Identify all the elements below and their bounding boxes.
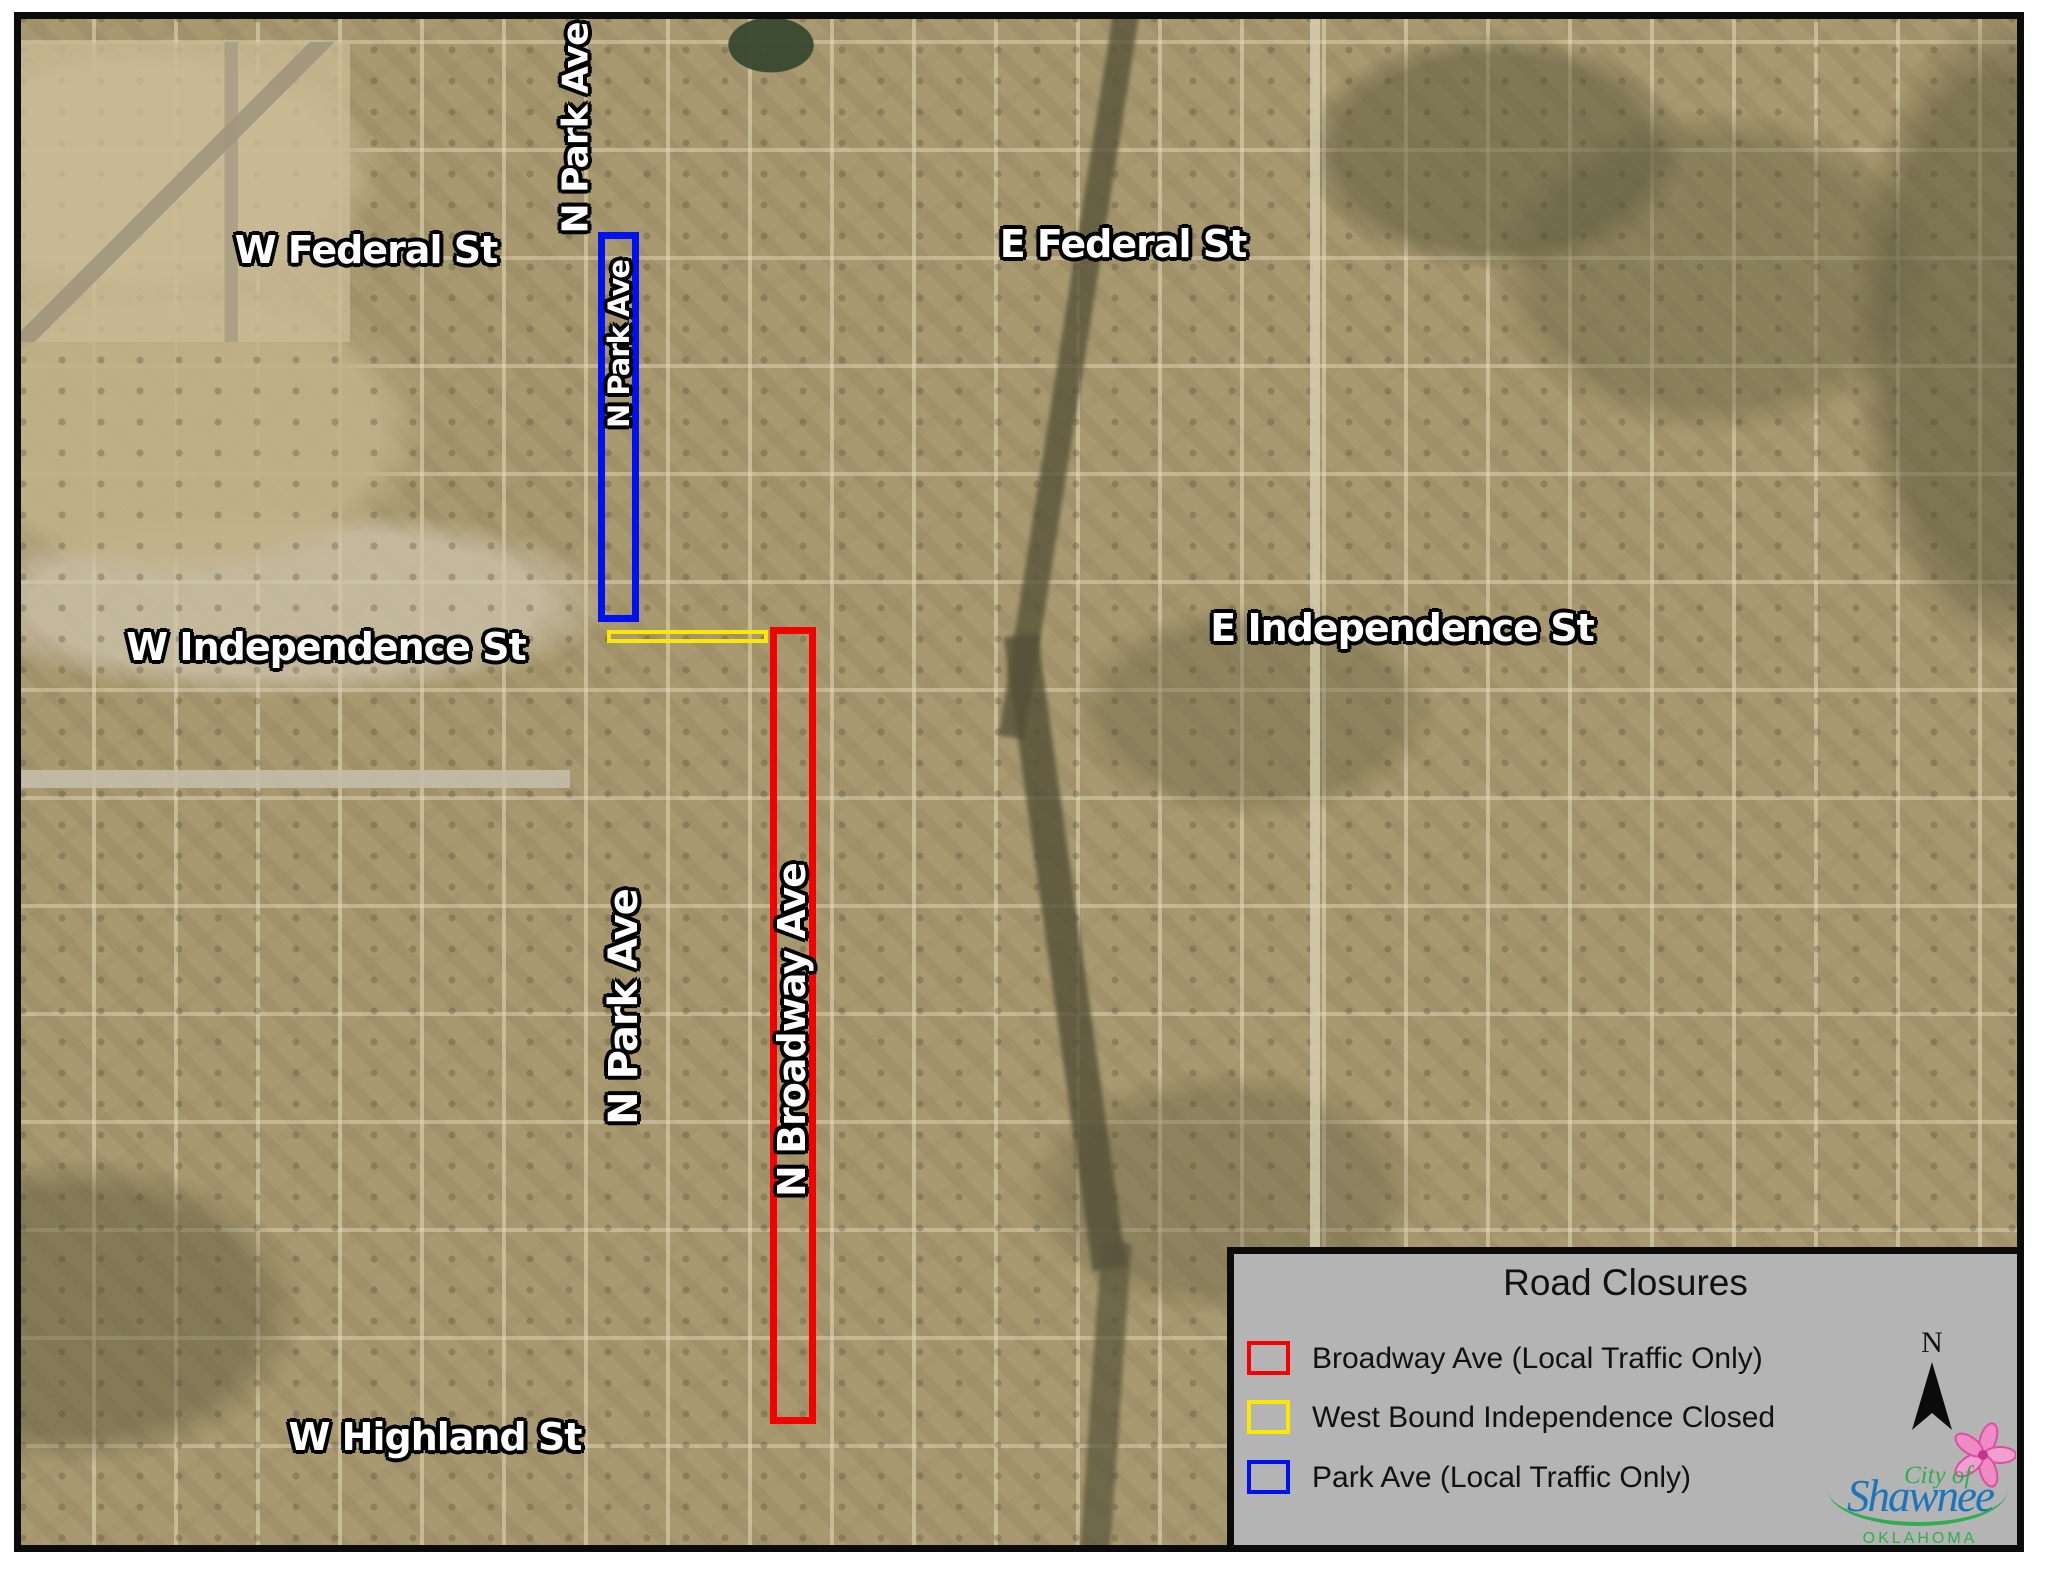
north-label: N <box>1902 1328 1962 1358</box>
logo-oklahoma-text: OKLAHOMA <box>1820 1530 2020 1548</box>
street-label-w-independence-st: W Independence St <box>126 625 525 669</box>
blue-swatch-icon <box>1247 1460 1290 1494</box>
street-label-e-independence-st: E Independence St <box>1210 606 1593 650</box>
street-label-n-broadway-ave: N Broadway Ave <box>770 863 814 1197</box>
city-of-shawnee-logo: City of Shawnee OKLAHOMA <box>1820 1436 2020 1548</box>
major-road-west <box>14 770 570 788</box>
yellow-swatch-icon <box>1247 1400 1290 1434</box>
street-label-n-park-ave-top: N Park Ave <box>556 22 597 233</box>
street-label-e-federal-st: E Federal St <box>1000 222 1247 266</box>
street-label-n-park-ave-closure: N Park Ave <box>602 260 636 428</box>
airport-field <box>20 42 350 342</box>
road-closures-map-page: N Park Ave W Federal St E Federal St N P… <box>0 0 2048 1583</box>
street-label-w-federal-st: W Federal St <box>235 228 497 272</box>
aerial-map: N Park Ave W Federal St E Federal St N P… <box>14 12 2024 1552</box>
independence-closure-rect <box>607 630 768 643</box>
legend-panel: Road Closures Broadway Ave (Local Traffi… <box>1227 1247 2024 1552</box>
street-label-n-park-ave-south: N Park Ave <box>601 889 647 1125</box>
north-arrow-icon <box>1910 1360 1954 1432</box>
street-label-w-highland-st: W Highland St <box>289 1415 582 1459</box>
legend-item-label: Park Ave (Local Traffic Only) <box>1312 1461 1691 1495</box>
north-indicator: N <box>1902 1328 1962 1432</box>
legend-item-label: Broadway Ave (Local Traffic Only) <box>1312 1342 1763 1376</box>
legend-title: Road Closures <box>1234 1262 2017 1304</box>
red-swatch-icon <box>1247 1341 1290 1375</box>
legend-item-label: West Bound Independence Closed <box>1312 1401 1775 1435</box>
